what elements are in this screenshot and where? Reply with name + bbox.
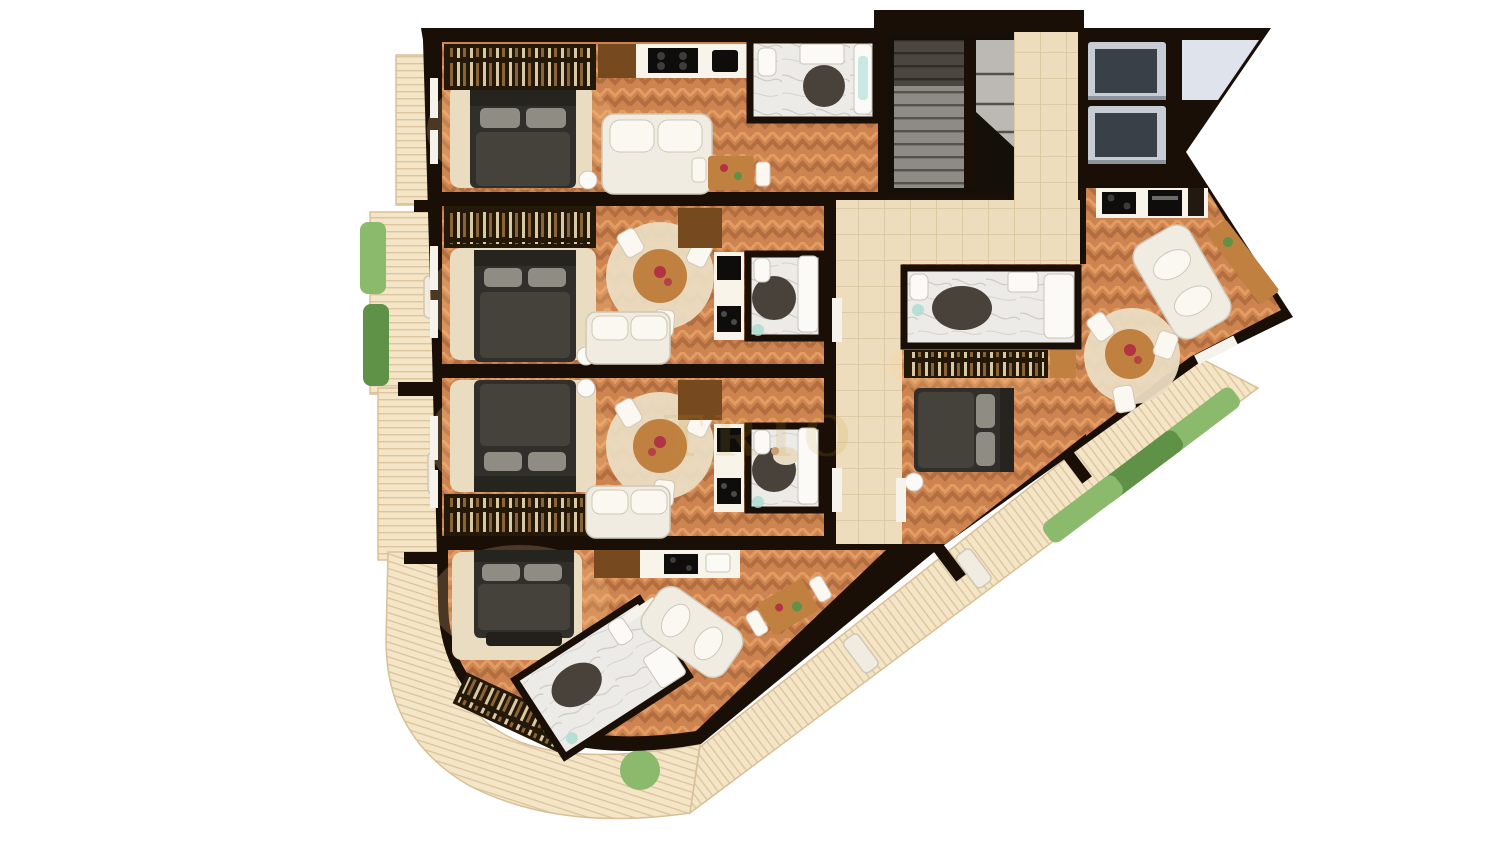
oven-icon [1148, 190, 1182, 216]
bed [474, 250, 576, 362]
kitchen-counter [598, 44, 748, 78]
bed [474, 550, 574, 646]
wardrobe [904, 350, 1076, 378]
sink-icon [706, 554, 730, 572]
bathtub-icon [1044, 274, 1074, 338]
sofa [586, 312, 670, 364]
hedge-planter-icon [360, 222, 386, 294]
chair [1112, 384, 1136, 413]
sink-icon [800, 44, 844, 64]
bed-bench [486, 632, 562, 646]
stair-spine [964, 40, 976, 188]
kitchen-counter [1096, 188, 1208, 218]
kitchen-counter [594, 550, 740, 578]
unit-2 [428, 206, 824, 365]
kitchen-strip [714, 252, 744, 340]
sink-icon [712, 50, 738, 72]
toilet-icon [910, 274, 928, 300]
bed [914, 388, 1014, 472]
floor-plan-canvas: CASA TRIO [0, 0, 1500, 844]
side-table [579, 171, 597, 189]
balcony-door [430, 78, 438, 118]
toilet-icon [754, 258, 770, 282]
cabinet [678, 208, 722, 248]
luggage-bench [1050, 350, 1076, 378]
bath-rug [932, 286, 992, 330]
balcony-door [430, 246, 438, 290]
bed [470, 90, 576, 188]
cooktop-icon [648, 48, 698, 73]
balcony-door [430, 470, 438, 508]
wardrobe [444, 494, 596, 536]
sofa [586, 486, 670, 538]
bathroom [748, 254, 822, 338]
cooktop-icon [717, 306, 741, 332]
bath-rug [752, 276, 796, 320]
potted-plant-icon [620, 750, 660, 790]
entry-door [896, 478, 906, 522]
unit-4 [430, 545, 886, 757]
balcony-door [430, 300, 438, 338]
sink-icon [1008, 272, 1038, 292]
watermark-large-text: TRIO [663, 402, 861, 470]
elevator-2 [1088, 106, 1166, 164]
elevator-1 [1088, 42, 1166, 100]
chair [692, 158, 706, 182]
bathroom [750, 40, 876, 120]
toilet-icon [758, 48, 776, 76]
door-unit-2 [832, 298, 842, 342]
watermark: CASA TRIO [663, 392, 861, 470]
wardrobe [444, 44, 596, 90]
hedge-planter-icon [363, 304, 389, 386]
unit-1 [427, 40, 878, 194]
bed [474, 380, 576, 492]
tall-cabinet [1188, 188, 1204, 216]
sink-icon [717, 256, 741, 280]
cooktop-icon [1102, 192, 1136, 214]
bathroom [904, 268, 1078, 346]
chair [756, 162, 770, 186]
door-unit-3 [832, 468, 842, 512]
side-table [905, 473, 923, 491]
bathtub-icon [798, 256, 818, 332]
elevator-core [1078, 28, 1180, 180]
cooktop-icon [664, 554, 698, 574]
bath-rug [803, 65, 845, 107]
floor-plan-render: CASA TRIO [0, 0, 1500, 844]
lightwell-notch [1182, 40, 1259, 100]
wardrobe [444, 206, 596, 248]
side-table [577, 379, 595, 397]
balcony-door [430, 416, 438, 460]
balcony-door [430, 130, 438, 164]
cooktop-icon [717, 478, 741, 504]
